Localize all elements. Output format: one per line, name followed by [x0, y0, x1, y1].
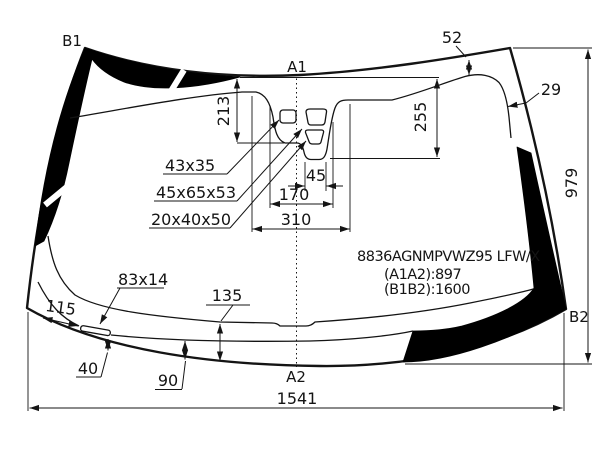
dim-170-label: 170	[279, 185, 310, 204]
sensor-housing-shape	[306, 109, 327, 125]
feature-label-sensor-window: 20x40x50	[151, 210, 231, 229]
part-number-text: 8836AGNMPVWZ95 LFW/X	[357, 249, 540, 265]
dim-52-label: 52	[442, 28, 462, 47]
dim-255-label: 255	[411, 102, 430, 133]
dim-40-label: 40	[78, 359, 98, 378]
dim-979-label: 979	[562, 168, 581, 199]
leader-40	[101, 353, 108, 378]
part-a1a2-text: (A1A2):897	[384, 267, 461, 283]
corner-label-b1: B1	[62, 32, 82, 50]
leader-90	[182, 361, 186, 389]
corner-label-b2: B2	[569, 308, 589, 326]
drawing-svg: B1 A1 A2 B2 52 29 979 1541 213 255 45 17…	[0, 0, 600, 450]
corner-label-a2: A2	[286, 368, 306, 386]
dim-45-label: 45	[306, 166, 326, 185]
dim-90-label: 90	[158, 371, 178, 390]
feature-label-mirror-button: 43x35	[165, 156, 215, 175]
mirror-button-shape	[280, 110, 296, 123]
feature-label-sensor-housing: 45x65x53	[156, 183, 236, 202]
dim-29-label: 29	[541, 80, 561, 99]
dim-213-label: 213	[214, 96, 233, 127]
dim-135-label: 135	[212, 286, 243, 305]
feature-label-vin-window: 83x14	[118, 270, 168, 289]
windshield-drawing: B1 A1 A2 B2 52 29 979 1541 213 255 45 17…	[0, 0, 600, 450]
corner-label-a1: A1	[287, 58, 307, 76]
dim-310-label: 310	[281, 210, 312, 229]
leader-29	[526, 93, 539, 103]
part-b1b2-text: (B1B2):1600	[384, 282, 470, 298]
dim-1541-label: 1541	[277, 389, 318, 408]
